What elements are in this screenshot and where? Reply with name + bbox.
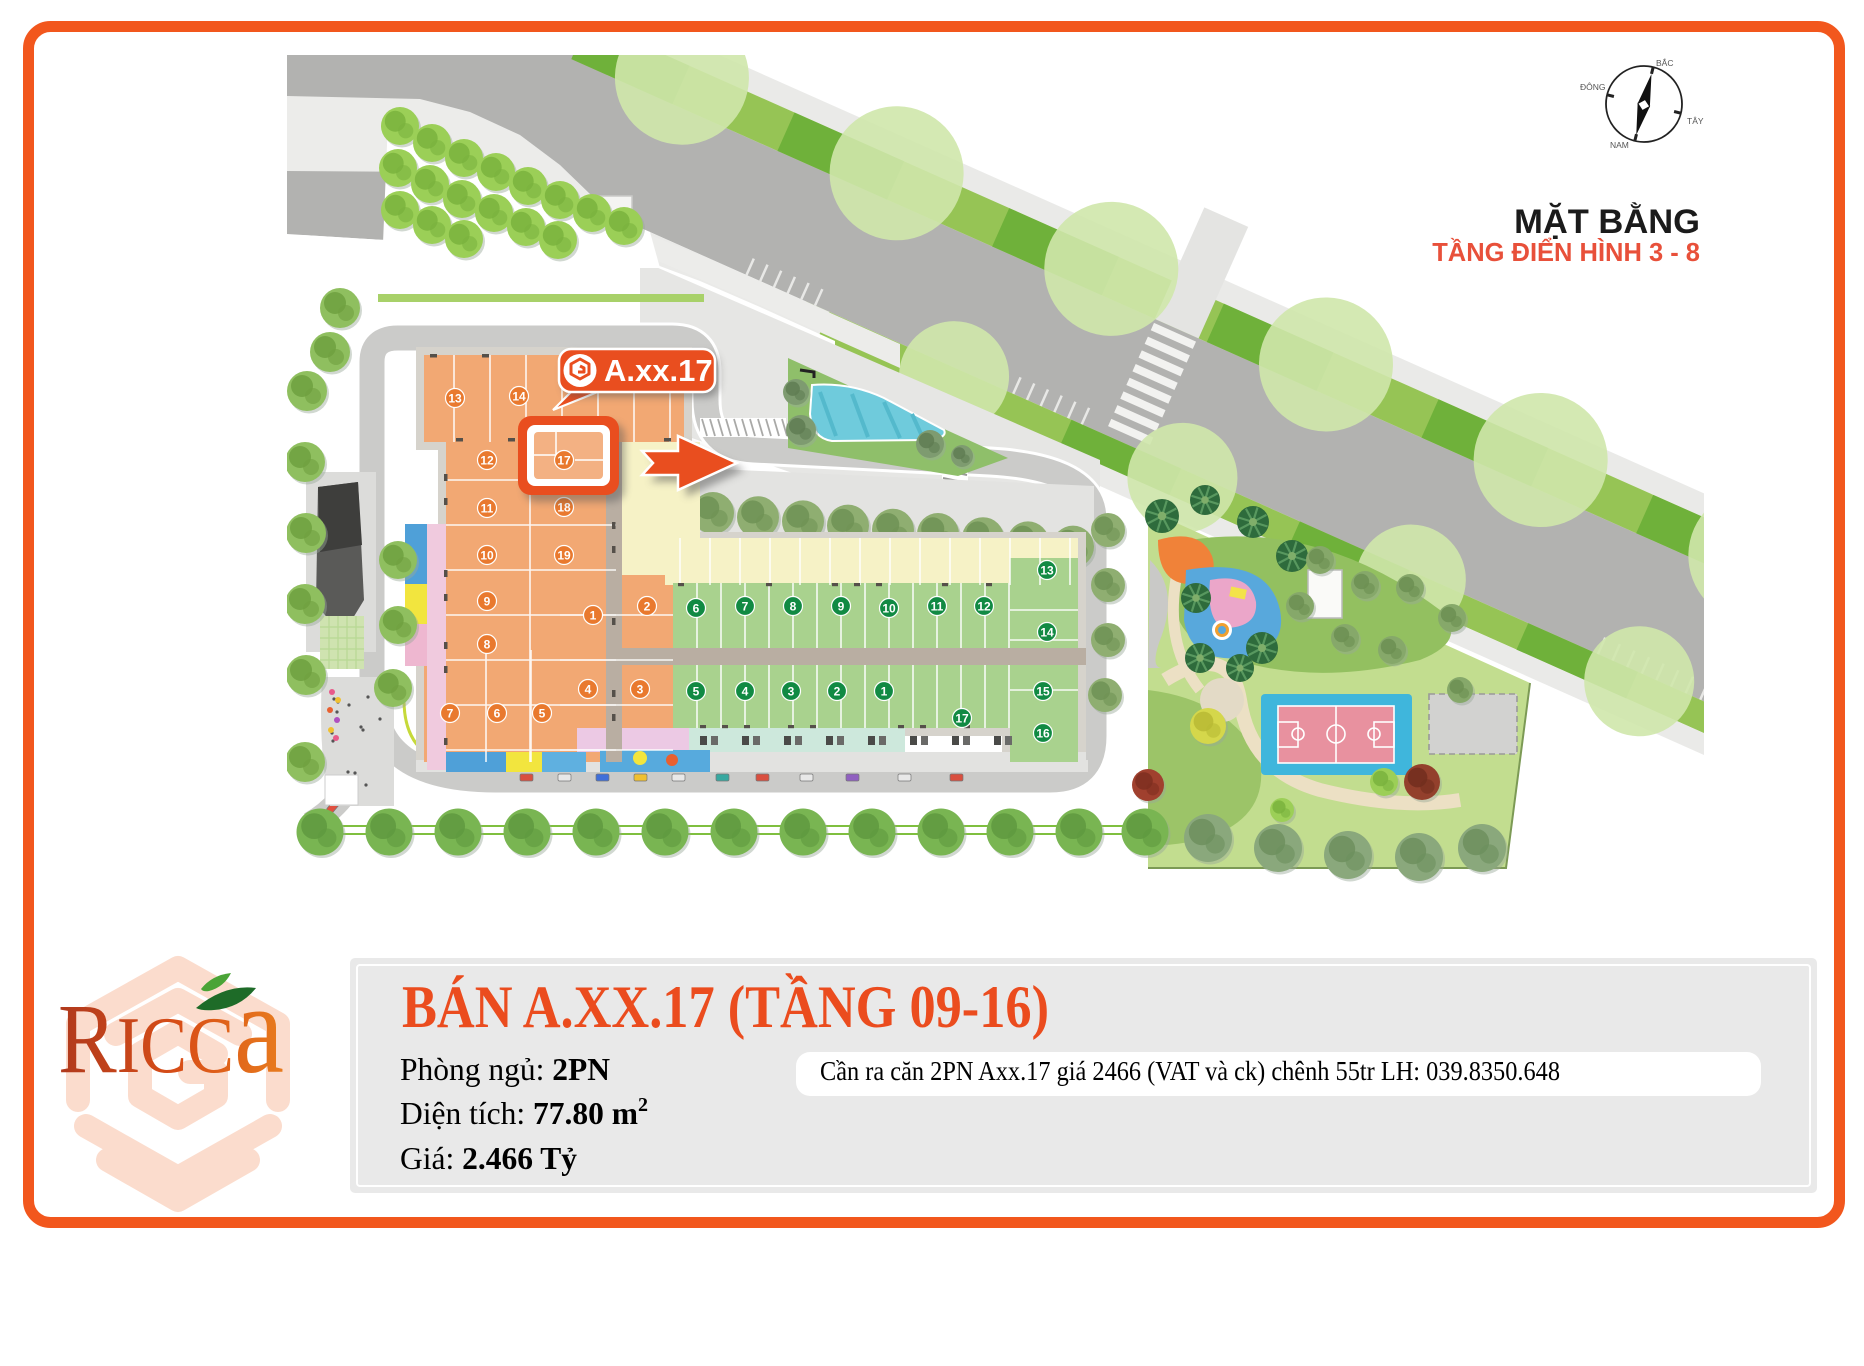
svg-text:Diện tích: 77.80 m2: Diện tích: 77.80 m2 [400,1094,648,1131]
svg-text:11: 11 [481,501,494,515]
svg-text:5: 5 [693,684,700,698]
svg-text:3: 3 [788,684,795,698]
svg-text:12: 12 [480,453,494,467]
svg-text:7: 7 [742,599,749,613]
svg-text:BÁN A.XX.17 (TẦNG 09-16): BÁN A.XX.17 (TẦNG 09-16) [402,974,1049,1040]
svg-text:14: 14 [512,389,526,403]
svg-text:17: 17 [557,453,571,467]
svg-text:2: 2 [834,684,841,698]
svg-text:12: 12 [977,599,991,613]
svg-text:3: 3 [637,682,644,696]
svg-text:16: 16 [1036,726,1050,740]
svg-text:MẶT BẰNG: MẶT BẰNG [1514,201,1700,241]
svg-text:19: 19 [557,548,571,562]
svg-text:BẮC: BẮC [1656,58,1673,68]
svg-text:6: 6 [693,601,700,615]
svg-text:8: 8 [484,637,491,651]
svg-text:18: 18 [557,500,571,514]
svg-text:14: 14 [1040,625,1054,639]
svg-text:15: 15 [1036,684,1050,698]
svg-text:ĐÔNG: ĐÔNG [1580,82,1606,92]
svg-text:1: 1 [590,608,597,622]
svg-text:2: 2 [644,599,651,613]
svg-text:13: 13 [448,391,462,405]
svg-text:Phòng ngủ: 2PN: Phòng ngủ: 2PN [400,1052,610,1087]
svg-text:Cần ra căn 2PN Axx.17 giá 2466: Cần ra căn 2PN Axx.17 giá 2466 (VAT và c… [820,1056,1560,1086]
svg-text:4: 4 [742,684,749,698]
svg-text:13: 13 [1040,563,1054,577]
svg-text:9: 9 [838,599,845,613]
svg-text:TẦNG ĐIỂN HÌNH 3 - 8: TẦNG ĐIỂN HÌNH 3 - 8 [1432,238,1700,267]
svg-text:6: 6 [494,706,501,720]
svg-text:4: 4 [585,682,592,696]
svg-text:TÂY: TÂY [1687,116,1704,126]
svg-text:10: 10 [882,601,896,615]
svg-text:11: 11 [931,599,944,613]
svg-text:1: 1 [881,684,888,698]
svg-text:8: 8 [790,599,797,613]
svg-text:A.xx.17: A.xx.17 [604,353,713,388]
svg-text:17: 17 [955,711,969,725]
svg-text:9: 9 [484,594,491,608]
svg-text:10: 10 [480,548,494,562]
svg-text:Giá: 2.466 Tỷ: Giá: 2.466 Tỷ [400,1141,577,1176]
svg-text:7: 7 [447,706,454,720]
svg-text:NAM: NAM [1610,140,1629,150]
svg-text:5: 5 [539,706,546,720]
